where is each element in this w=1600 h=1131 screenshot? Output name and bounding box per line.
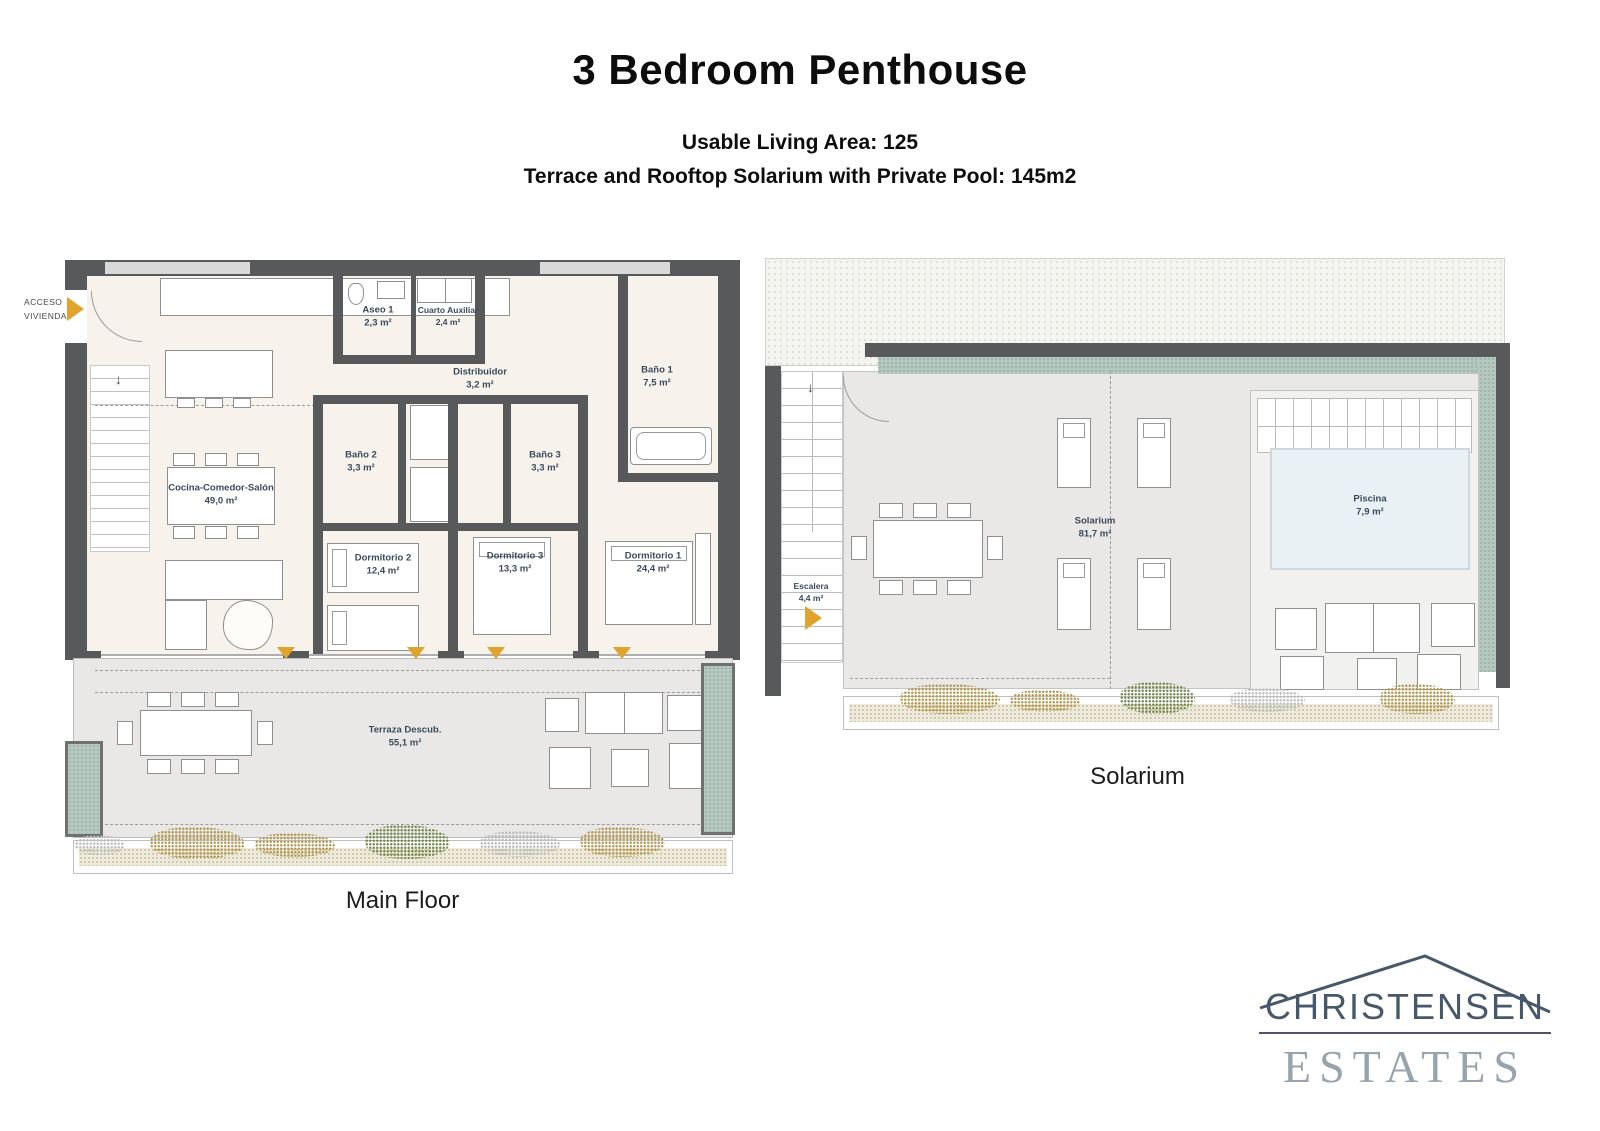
window	[540, 262, 670, 274]
toilet	[348, 283, 364, 305]
logo-estates: ESTATES	[1255, 1040, 1555, 1093]
wall	[65, 343, 87, 660]
wall	[313, 523, 588, 531]
subtitle-terrace: Terrace and Rooftop Solarium with Privat…	[0, 160, 1600, 194]
bar-stool	[233, 398, 251, 408]
room-label-dormitorio3: Dormitorio 313,3 m²	[487, 550, 543, 577]
sofa	[165, 600, 207, 650]
zone-divider	[850, 678, 1110, 679]
kitchen-island	[165, 350, 273, 398]
escalera-arrow-icon	[805, 606, 822, 630]
terrace-chair	[147, 759, 171, 774]
lounge-chair	[549, 747, 591, 789]
dining-chair	[237, 526, 259, 539]
terrace-door-arrow-icon	[277, 647, 295, 659]
dining-chair	[947, 580, 971, 595]
christensen-estates-logo: CHRISTENSEN ESTATES	[1255, 948, 1555, 1113]
outdoor-sofa	[1325, 603, 1420, 653]
logo-name: CHRISTENSEN	[1255, 986, 1555, 1028]
terrace-chair	[181, 759, 205, 774]
plants-decoration	[365, 825, 450, 859]
wardrobe	[410, 405, 450, 460]
room-label-piscina: Piscina7,9 m²	[1353, 493, 1386, 520]
dining-chair	[987, 536, 1003, 560]
stairs-down-arrow-icon: ↓	[115, 372, 122, 386]
sun-lounger	[1137, 418, 1171, 488]
wall	[398, 395, 406, 523]
terrace-dining-table	[140, 710, 252, 756]
window	[105, 262, 250, 274]
dining-table	[873, 520, 983, 578]
room-label-distribuidor: Distribuidor3,2 m²	[453, 366, 507, 393]
side-table	[667, 695, 703, 731]
sink	[377, 281, 405, 299]
plants-decoration	[1230, 688, 1305, 712]
lounge-chair	[1431, 603, 1475, 647]
main-floor-caption: Main Floor	[65, 887, 740, 915]
page-subtitle: Usable Living Area: 125 Terrace and Roof…	[0, 126, 1600, 193]
planter	[1479, 357, 1496, 672]
sun-lounger	[1057, 558, 1091, 630]
wall	[65, 260, 87, 290]
plants-decoration	[480, 831, 560, 857]
lounge-chair	[1280, 656, 1324, 690]
entrance-arrow-icon	[67, 297, 84, 321]
room-label-dormitorio2: Dormitorio 212,4 m²	[355, 552, 411, 579]
subtitle-living-area: Usable Living Area: 125	[0, 126, 1600, 160]
washing-machine	[417, 278, 472, 303]
planter	[701, 663, 735, 835]
logo-divider	[1259, 1032, 1551, 1034]
terrace-door-arrow-icon	[407, 647, 425, 659]
plants-decoration	[900, 684, 1000, 714]
terrace-door-arrow-icon	[487, 647, 505, 659]
plants-decoration	[1380, 684, 1455, 714]
terrace-chair	[215, 759, 239, 774]
room-label-bano3: Baño 33,3 m²	[529, 449, 561, 476]
room-label-cocina: Cocina-Comedor-Salón49,0 m²	[168, 482, 274, 509]
terrace-door-arrow-icon	[613, 647, 631, 659]
lounge-chair	[1275, 608, 1317, 650]
room-label-terraza: Terraza Descub.55,1 m²	[369, 724, 442, 751]
access-vivienda-label: ACCESO VIVIENDA	[24, 296, 67, 323]
plants-decoration	[75, 835, 125, 855]
room-label-bano1: Baño 17,5 m²	[641, 364, 673, 391]
wall	[1496, 343, 1510, 688]
room-label-cuarto-auxiliar: Cuarto Auxiliar2,4 m²	[418, 305, 479, 329]
terrace-chair	[147, 692, 171, 707]
side-table	[611, 749, 649, 787]
side-table	[1357, 658, 1397, 690]
room-label-escalera: Escalera4,4 m²	[794, 581, 829, 605]
plants-decoration	[580, 827, 665, 857]
wall	[503, 395, 511, 523]
room-label-solarium: Solarium81,7 m²	[1075, 515, 1116, 542]
pool-steps	[1257, 398, 1472, 453]
wall	[865, 343, 1510, 357]
terrace-chair	[257, 721, 273, 745]
planter	[65, 741, 103, 837]
terrace-dashed-line	[95, 670, 715, 671]
plants-decoration	[1120, 682, 1195, 714]
wall	[333, 355, 485, 364]
sun-lounger	[1057, 418, 1091, 488]
wardrobe	[695, 533, 711, 625]
dining-chair	[205, 453, 227, 466]
solarium-plan: ↓	[765, 258, 1510, 818]
sofa	[165, 560, 283, 600]
page: 3 Bedroom Penthouse Usable Living Area: …	[0, 0, 1600, 1131]
plants-decoration	[150, 827, 245, 859]
room-label-dormitorio1: Dormitorio 124,4 m²	[625, 550, 681, 577]
solarium-caption: Solarium	[765, 763, 1510, 791]
dining-chair	[851, 536, 867, 560]
dining-chair	[173, 453, 195, 466]
wall	[618, 473, 720, 482]
room-label-bano2: Baño 23,3 m²	[345, 449, 377, 476]
stairs-down-arrow-icon: ↓	[807, 380, 814, 394]
coffee-table	[223, 600, 273, 650]
dining-chair	[879, 580, 903, 595]
wall	[411, 276, 416, 356]
bathtub	[630, 427, 712, 465]
terrace-chair	[215, 692, 239, 707]
dining-chair	[205, 526, 227, 539]
wall	[313, 395, 588, 404]
wall	[618, 276, 628, 482]
wardrobe	[410, 467, 450, 522]
planter	[878, 357, 1496, 374]
room-label-aseo1: Aseo 12,3 m²	[362, 304, 393, 331]
dining-chair	[237, 453, 259, 466]
wall	[333, 276, 343, 364]
stairs: ↓	[90, 365, 150, 552]
dining-chair	[173, 526, 195, 539]
page-title: 3 Bedroom Penthouse	[0, 46, 1600, 94]
bar-stool	[177, 398, 195, 408]
wall	[718, 260, 740, 660]
dining-chair	[913, 580, 937, 595]
plants-decoration	[255, 833, 335, 857]
side-table	[545, 698, 579, 732]
plants-decoration	[1010, 690, 1080, 712]
bed	[327, 605, 419, 651]
main-floor-plan: ↓	[65, 255, 740, 945]
terrace-chair	[117, 721, 133, 745]
dining-chair	[879, 503, 903, 518]
bar-stool	[205, 398, 223, 408]
dining-chair	[913, 503, 937, 518]
wall	[765, 366, 781, 696]
terrace-chair	[181, 692, 205, 707]
sun-lounger	[1137, 558, 1171, 630]
dining-chair	[947, 503, 971, 518]
outdoor-sofa	[585, 692, 663, 734]
